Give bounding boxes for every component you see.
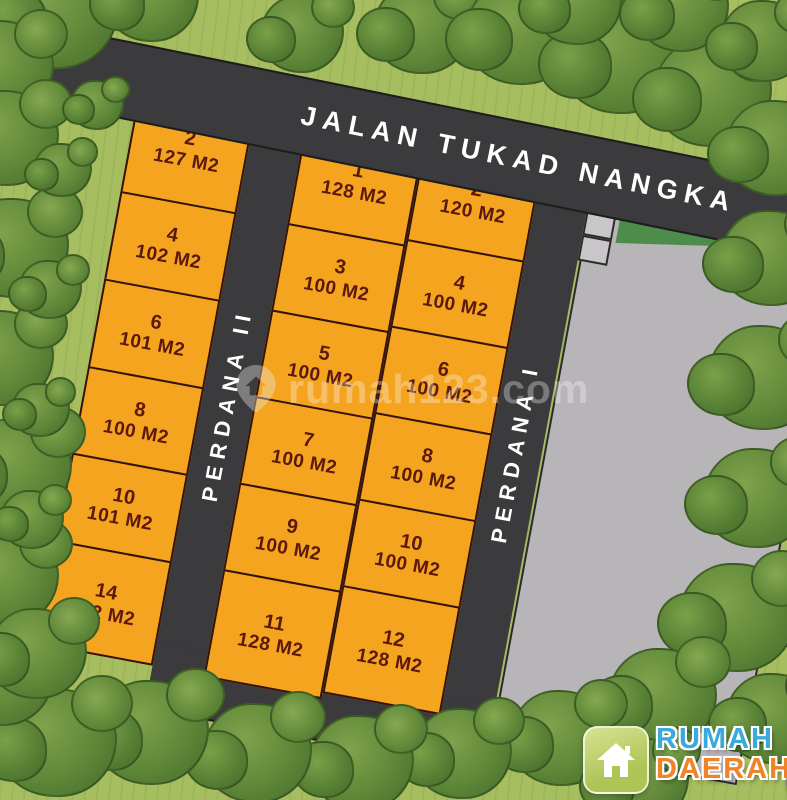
house-icon [583, 726, 649, 794]
plot-area: 100 M2 [389, 462, 458, 496]
plot-number: 8 [132, 398, 147, 423]
plot-number: 7 [301, 428, 316, 453]
gate-structure [578, 235, 612, 266]
plot-area: 120 M2 [438, 195, 507, 229]
watermark-text: rumah123.com [288, 366, 589, 413]
plot: 11128 M2 [203, 569, 341, 699]
plot-number: 6 [149, 311, 164, 336]
plot-area: 100 M2 [270, 446, 339, 480]
plot-area: 101 M2 [117, 328, 186, 362]
location-pin-icon [233, 363, 279, 415]
plot-area: 127 M2 [151, 145, 220, 179]
plot-area: 128 M2 [236, 629, 305, 663]
plot: 12128 M2 [322, 585, 460, 715]
plot-area: 102 M2 [134, 241, 203, 275]
plot-number: 4 [165, 223, 180, 248]
tree [203, 703, 312, 800]
plot-number: 9 [285, 515, 300, 540]
plot-number: 3 [333, 255, 348, 280]
plot-number: 8 [420, 444, 435, 469]
plot-area: 128 M2 [319, 176, 388, 210]
tree [0, 490, 64, 549]
tree [310, 715, 414, 800]
watermark: rumah123.com [233, 363, 589, 415]
tree [11, 383, 70, 438]
plot-number: 4 [452, 271, 467, 296]
tree [413, 708, 512, 799]
plot-area: 128 M2 [355, 645, 424, 679]
tree [70, 80, 124, 130]
plot-area: 100 M2 [101, 415, 170, 449]
tree [33, 143, 92, 198]
brand-name: RUMAH DAERAH [656, 726, 787, 783]
tree [720, 0, 787, 82]
tree [18, 260, 82, 319]
site-plan-image: PERDANA II PERDANA I 2127 M24102 M26101 … [0, 0, 787, 800]
brand-name-line2: DAERAH [656, 756, 787, 784]
plot-area: 100 M2 [373, 548, 442, 582]
plot-area: 100 M2 [421, 289, 490, 323]
brand-logo: RUMAH DAERAH .COM [583, 726, 787, 796]
plot-area: 100 M2 [254, 532, 323, 566]
brand-name-line1: RUMAH [656, 726, 787, 754]
plot-area: 100 M2 [302, 273, 371, 307]
plot-area: 101 M2 [85, 502, 154, 536]
